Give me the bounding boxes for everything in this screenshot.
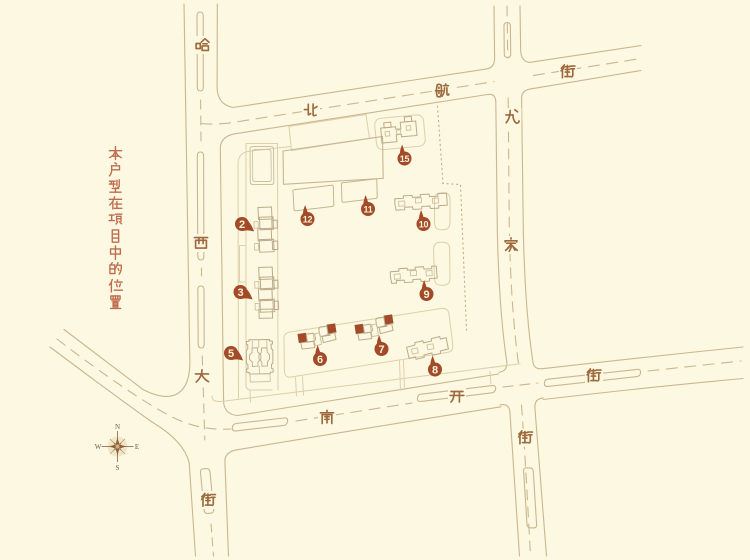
svg-text:N: N	[115, 423, 120, 431]
svg-text:3: 3	[237, 287, 243, 299]
svg-text:11: 11	[364, 204, 373, 214]
svg-text:15: 15	[400, 154, 410, 164]
svg-text:8: 8	[432, 364, 438, 376]
svg-text:9: 9	[423, 289, 429, 301]
svg-text:10: 10	[419, 219, 429, 229]
svg-text:5: 5	[228, 348, 234, 360]
svg-text:2: 2	[239, 219, 245, 231]
svg-text:6: 6	[317, 354, 323, 366]
svg-text:S: S	[116, 464, 120, 472]
svg-text:12: 12	[303, 214, 313, 224]
svg-text:W: W	[95, 443, 102, 451]
svg-text:E: E	[135, 443, 139, 451]
svg-text:7: 7	[378, 344, 384, 356]
